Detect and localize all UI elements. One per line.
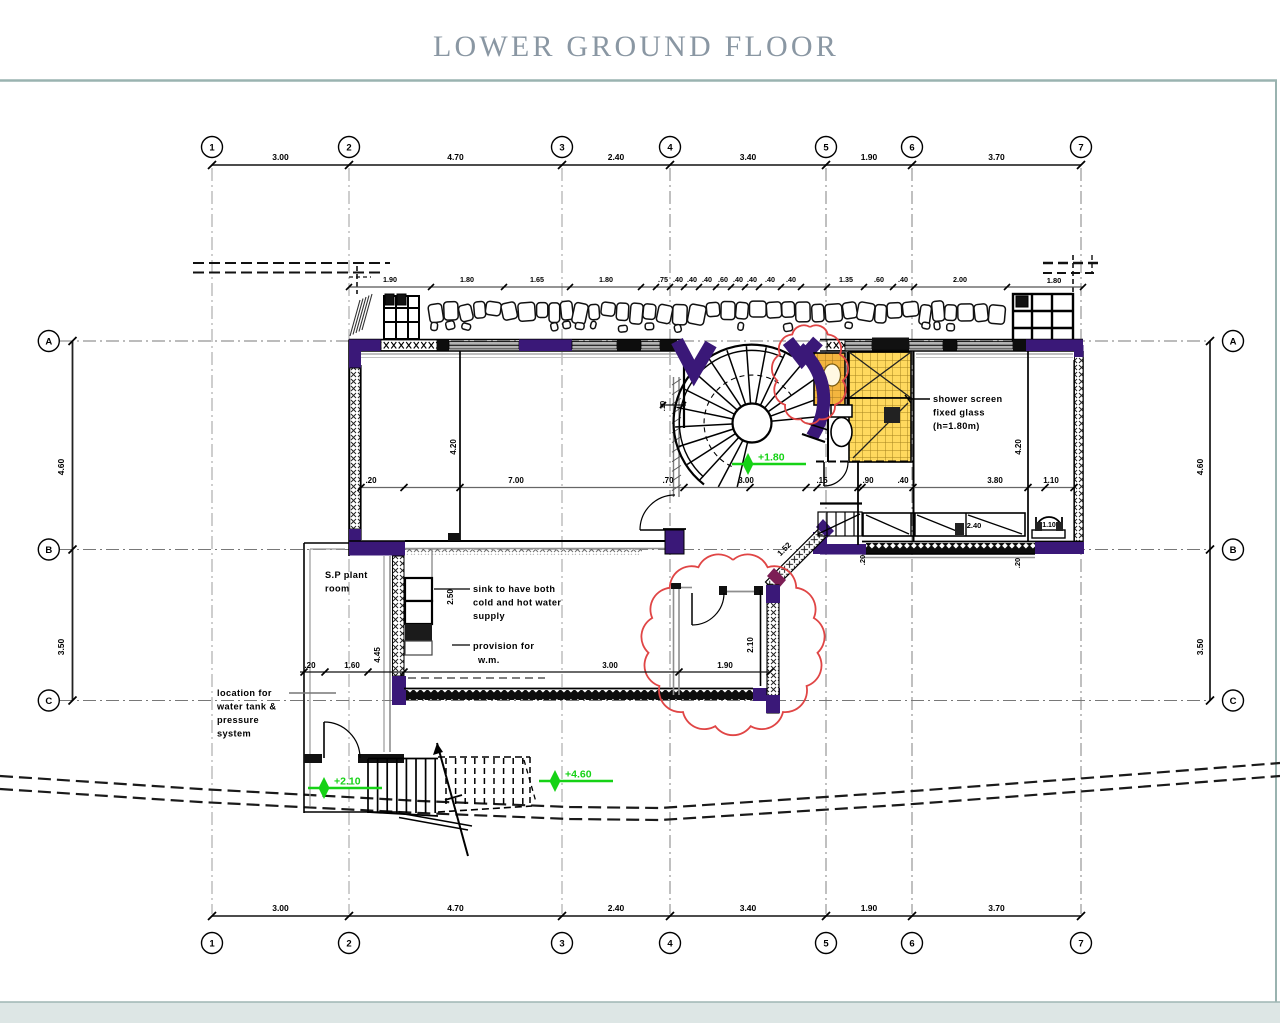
svg-text:3.50: 3.50 xyxy=(56,638,66,655)
svg-text:2: 2 xyxy=(346,938,351,949)
svg-text:1.90: 1.90 xyxy=(861,903,878,913)
svg-text:2.00: 2.00 xyxy=(953,275,967,284)
svg-text:1: 1 xyxy=(209,938,215,949)
svg-text:room: room xyxy=(325,584,350,594)
svg-text:4.20: 4.20 xyxy=(1014,439,1023,455)
svg-text:A: A xyxy=(45,336,52,347)
svg-text:4.70: 4.70 xyxy=(447,903,464,913)
svg-text:.20: .20 xyxy=(1013,558,1022,568)
svg-text:system: system xyxy=(217,729,251,739)
svg-text:2.40: 2.40 xyxy=(608,903,625,913)
svg-text:4.60: 4.60 xyxy=(1195,458,1205,475)
svg-text:LOWER GROUND FLOOR: LOWER GROUND FLOOR xyxy=(433,30,839,63)
svg-text:B: B xyxy=(45,545,52,556)
svg-text:.40: .40 xyxy=(702,275,712,284)
svg-text:w.m.: w.m. xyxy=(477,655,500,665)
svg-text:location for: location for xyxy=(217,688,272,698)
svg-text:4.60: 4.60 xyxy=(56,458,66,475)
svg-text:1: 1 xyxy=(209,142,215,153)
svg-text:.40: .40 xyxy=(897,476,909,485)
svg-text:7.00: 7.00 xyxy=(508,476,524,485)
svg-text:5: 5 xyxy=(823,938,829,949)
svg-text:.20: .20 xyxy=(365,476,377,485)
svg-text:fixed glass: fixed glass xyxy=(933,408,985,418)
svg-text:3.40: 3.40 xyxy=(740,903,757,913)
svg-text:4: 4 xyxy=(667,938,673,949)
svg-text:.40: .40 xyxy=(786,275,796,284)
svg-text:pressure: pressure xyxy=(217,715,259,725)
svg-text:3: 3 xyxy=(559,142,564,153)
svg-text:supply: supply xyxy=(473,611,505,621)
svg-text:water tank &: water tank & xyxy=(216,702,276,712)
svg-text:+1.80: +1.80 xyxy=(758,452,785,464)
svg-text:3.70: 3.70 xyxy=(988,903,1005,913)
svg-text:A: A xyxy=(1230,336,1237,347)
svg-text:provision for: provision for xyxy=(473,641,534,651)
svg-text:.60: .60 xyxy=(718,275,728,284)
svg-text:2: 2 xyxy=(346,142,351,153)
svg-text:cold and hot water: cold and hot water xyxy=(473,598,561,608)
svg-text:7: 7 xyxy=(1078,142,1083,153)
svg-text:6: 6 xyxy=(909,938,914,949)
svg-text:2.40: 2.40 xyxy=(608,152,625,162)
svg-text:2.10: 2.10 xyxy=(746,637,755,653)
svg-text:.40: .40 xyxy=(747,275,757,284)
svg-text:.40: .40 xyxy=(673,275,683,284)
svg-text:1.80: 1.80 xyxy=(599,275,613,284)
svg-text:7: 7 xyxy=(1078,938,1083,949)
svg-text:3.00: 3.00 xyxy=(272,903,289,913)
svg-text:1.10: 1.10 xyxy=(1042,522,1056,529)
svg-text:.70: .70 xyxy=(662,476,674,485)
svg-text:1.60: 1.60 xyxy=(344,661,360,670)
svg-text:1.80: 1.80 xyxy=(460,275,474,284)
svg-text:.15: .15 xyxy=(816,476,828,485)
svg-text:.40: .40 xyxy=(898,275,908,284)
svg-text:.60: .60 xyxy=(874,275,884,284)
svg-text:3.80: 3.80 xyxy=(987,476,1003,485)
svg-text:1.90: 1.90 xyxy=(861,152,878,162)
svg-text:C: C xyxy=(45,696,52,707)
svg-text:C: C xyxy=(1230,696,1237,707)
svg-text:.20: .20 xyxy=(304,661,316,670)
svg-text:sink to have both: sink to have both xyxy=(473,584,555,594)
svg-text:+2.10: +2.10 xyxy=(334,776,361,788)
svg-text:3.40: 3.40 xyxy=(740,152,757,162)
svg-text:2.50: 2.50 xyxy=(446,589,455,605)
svg-text:4.20: 4.20 xyxy=(449,439,458,455)
svg-text:4.45: 4.45 xyxy=(373,647,382,663)
svg-text:S.P plant: S.P plant xyxy=(325,570,368,580)
svg-text:1.65: 1.65 xyxy=(530,275,544,284)
svg-text:.40: .40 xyxy=(733,275,743,284)
svg-text:2.40: 2.40 xyxy=(967,521,982,530)
svg-text:5: 5 xyxy=(823,142,829,153)
svg-text:3.00: 3.00 xyxy=(602,661,618,670)
svg-text:1.90: 1.90 xyxy=(383,275,397,284)
svg-text:4.70: 4.70 xyxy=(447,152,464,162)
svg-text:1.35: 1.35 xyxy=(839,275,853,284)
svg-text:.40: .40 xyxy=(687,275,697,284)
svg-text:.20: .20 xyxy=(858,555,867,565)
svg-text:3.00: 3.00 xyxy=(738,476,754,485)
svg-text:B: B xyxy=(1230,545,1237,556)
svg-text:3.70: 3.70 xyxy=(988,152,1005,162)
svg-text:4: 4 xyxy=(667,142,673,153)
svg-text:(h=1.80m): (h=1.80m) xyxy=(933,421,980,431)
svg-text:3: 3 xyxy=(559,938,564,949)
svg-text:.90: .90 xyxy=(862,476,874,485)
svg-text:1.90: 1.90 xyxy=(717,661,733,670)
svg-text:shower screen: shower screen xyxy=(933,394,1003,404)
svg-text:1.80: 1.80 xyxy=(1047,276,1062,285)
svg-text:+4.60: +4.60 xyxy=(565,769,592,781)
svg-text:6: 6 xyxy=(909,142,914,153)
svg-text:3.50: 3.50 xyxy=(1195,638,1205,655)
svg-text:.75: .75 xyxy=(658,275,668,284)
svg-text:.40: .40 xyxy=(765,275,775,284)
svg-text:1.10: 1.10 xyxy=(1043,476,1059,485)
svg-text:3.00: 3.00 xyxy=(272,152,289,162)
